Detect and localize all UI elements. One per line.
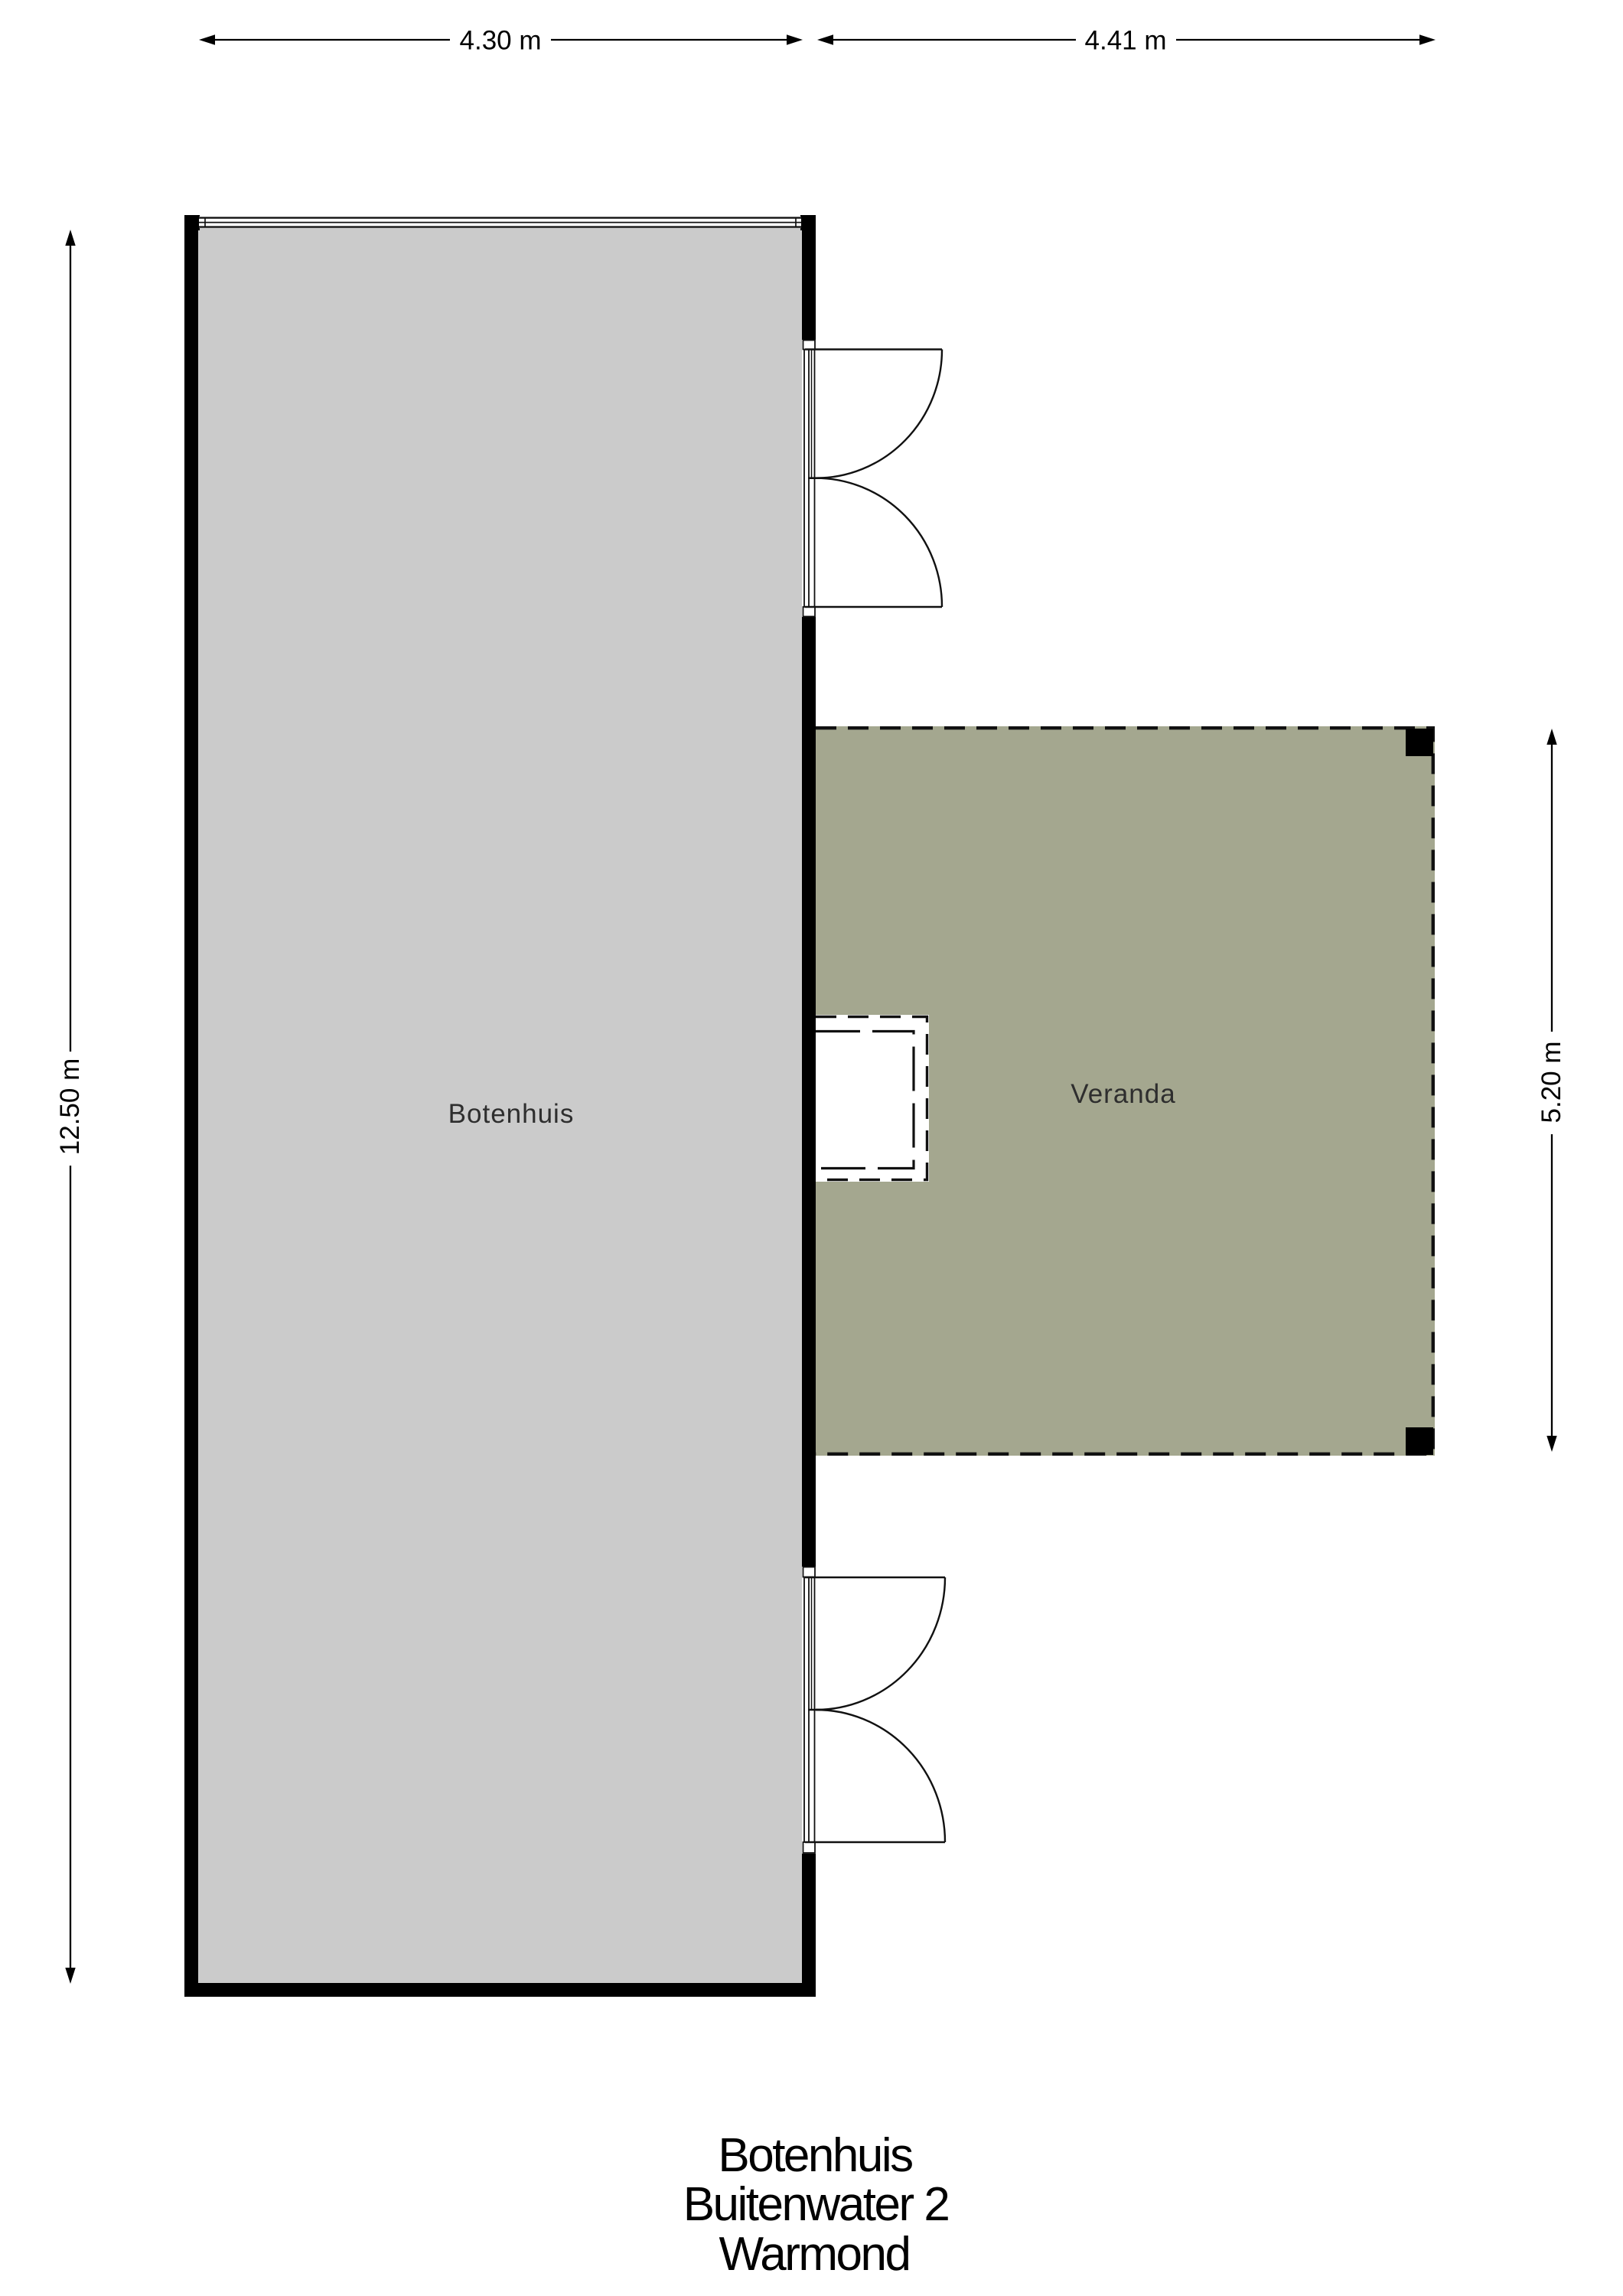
- svg-text:12.50 m: 12.50 m: [55, 1058, 85, 1155]
- svg-text:4.30 m: 4.30 m: [460, 26, 542, 56]
- svg-text:Veranda: Veranda: [1071, 1079, 1175, 1109]
- svg-text:Botenhuis: Botenhuis: [448, 1099, 575, 1129]
- svg-text:5.20 m: 5.20 m: [1537, 1042, 1566, 1124]
- svg-text:Botenhuis: Botenhuis: [718, 2129, 912, 2182]
- svg-text:Buitenwater 2: Buitenwater 2: [683, 2178, 949, 2231]
- svg-text:Warmond: Warmond: [719, 2228, 910, 2281]
- svg-text:4.41 m: 4.41 m: [1085, 26, 1167, 56]
